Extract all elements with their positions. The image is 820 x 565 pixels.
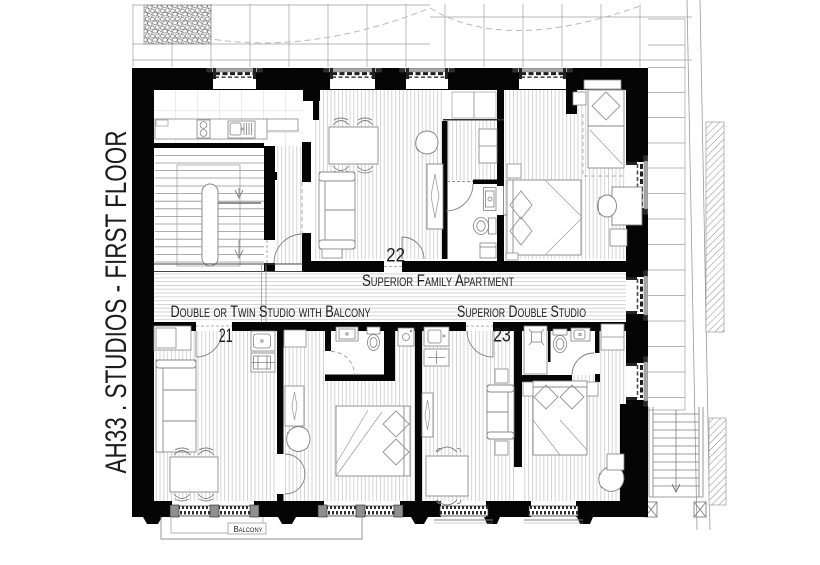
svg-text:Superior Family Apartment: Superior Family Apartment bbox=[362, 271, 515, 290]
svg-text:AH33 . STUDIOS - FIRST FLOOR: AH33 . STUDIOS - FIRST FLOOR bbox=[100, 131, 133, 474]
svg-text:23: 23 bbox=[493, 326, 511, 347]
svg-text:22: 22 bbox=[386, 246, 405, 267]
svg-text:Double or Twin Studio with Bal: Double or Twin Studio with Balcony bbox=[171, 302, 371, 321]
svg-text:21: 21 bbox=[219, 326, 233, 347]
svg-text:Balcony: Balcony bbox=[234, 525, 263, 534]
svg-text:Superior Double Studio: Superior Double Studio bbox=[457, 302, 586, 321]
